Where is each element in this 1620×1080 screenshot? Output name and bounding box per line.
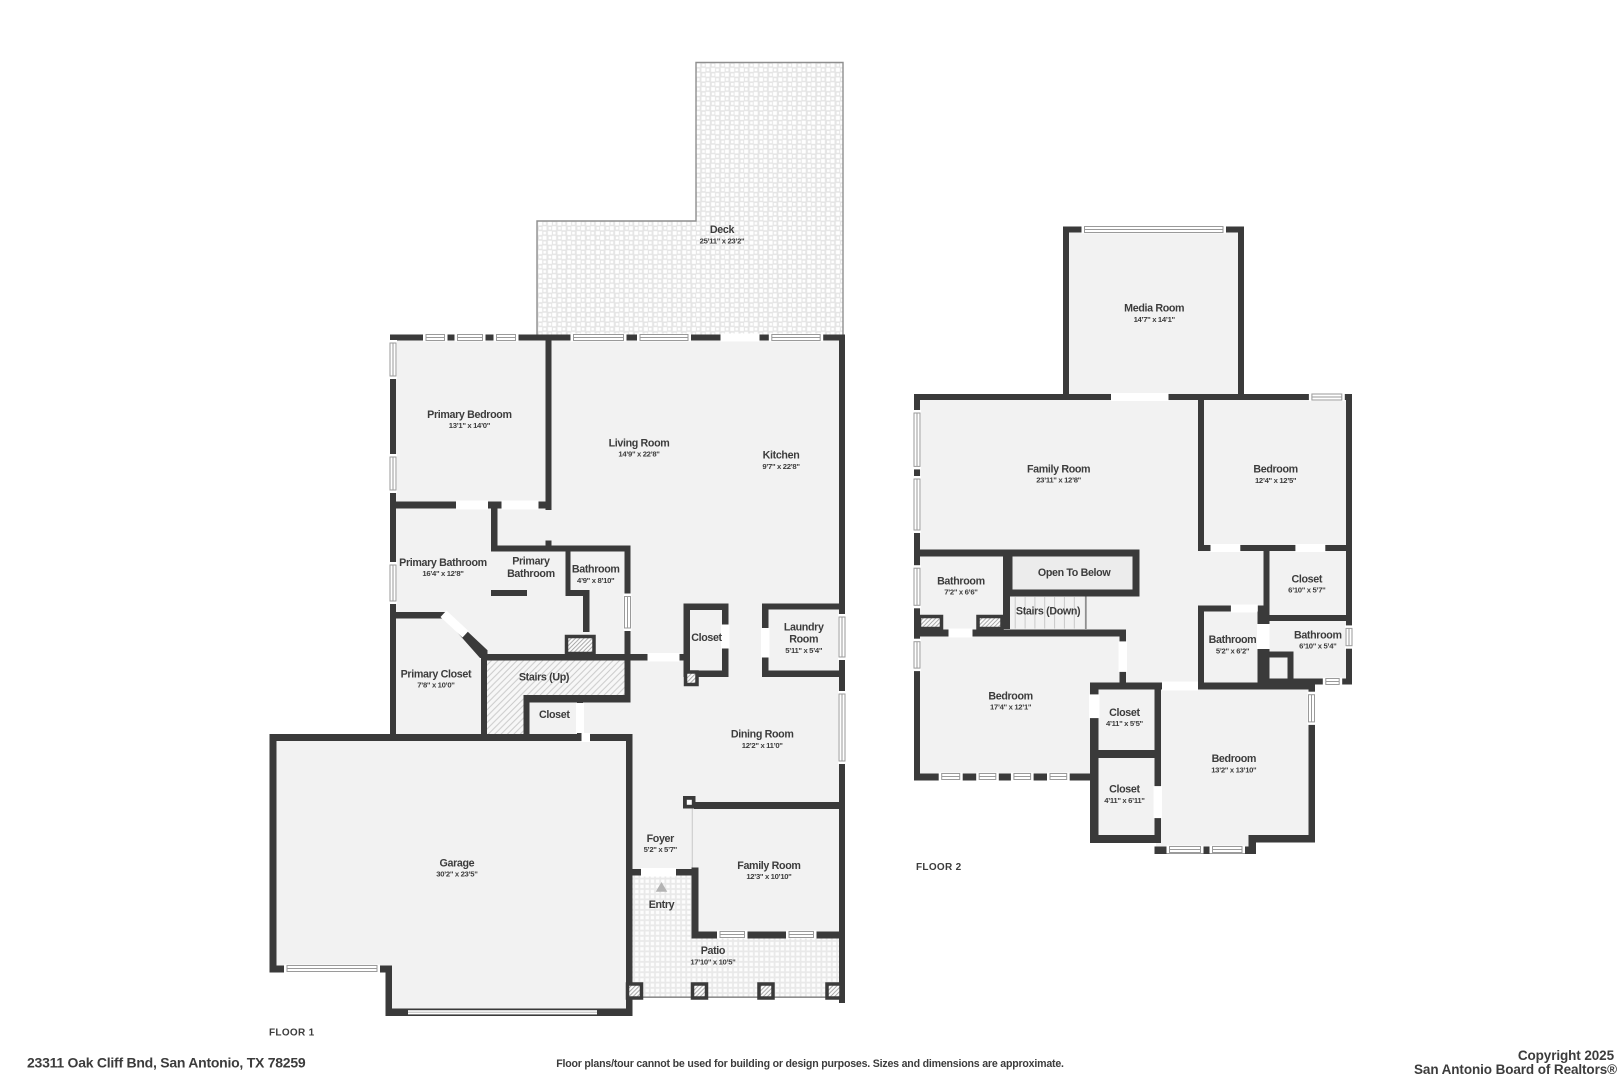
- svg-text:Room: Room: [789, 634, 818, 646]
- svg-text:Bedroom: Bedroom: [1212, 753, 1256, 765]
- svg-text:Closet: Closet: [1109, 784, 1140, 796]
- svg-text:Open To Below: Open To Below: [1038, 567, 1111, 579]
- svg-text:Bathroom: Bathroom: [507, 568, 555, 580]
- svg-text:12’4" x 12’5": 12’4" x 12’5": [1255, 476, 1297, 485]
- svg-text:7’8" x 10’0": 7’8" x 10’0": [417, 681, 455, 690]
- svg-text:16’4" x 12’8": 16’4" x 12’8": [422, 569, 464, 578]
- svg-text:Closet: Closet: [691, 632, 722, 644]
- svg-text:San Antonio Board of Realtors®: San Antonio Board of Realtors®: [1414, 1062, 1617, 1077]
- svg-text:Bedroom: Bedroom: [988, 690, 1032, 702]
- svg-text:4’11" x 5’5": 4’11" x 5’5": [1106, 719, 1144, 728]
- svg-text:13’1" x 14’0": 13’1" x 14’0": [449, 421, 491, 430]
- svg-text:Stairs (Up): Stairs (Up): [519, 672, 570, 684]
- svg-text:Entry: Entry: [649, 899, 675, 911]
- svg-text:FLOOR 2: FLOOR 2: [916, 862, 962, 873]
- svg-text:Laundry: Laundry: [784, 621, 824, 633]
- svg-text:5’2" x 5’7": 5’2" x 5’7": [644, 845, 678, 854]
- svg-text:Living Room: Living Room: [609, 437, 670, 449]
- svg-text:4’11" x 6’11": 4’11" x 6’11": [1104, 796, 1145, 805]
- svg-text:Bathroom: Bathroom: [572, 564, 620, 576]
- svg-text:Foyer: Foyer: [647, 833, 675, 845]
- svg-text:Primary Closet: Primary Closet: [401, 668, 472, 680]
- svg-text:30’2" x 23’5": 30’2" x 23’5": [436, 870, 478, 879]
- svg-text:Closet: Closet: [539, 709, 570, 721]
- svg-text:Media Room: Media Room: [1124, 303, 1184, 315]
- svg-text:Closet: Closet: [1109, 707, 1140, 719]
- svg-text:FLOOR 1: FLOOR 1: [269, 1028, 315, 1039]
- svg-text:Bathroom: Bathroom: [937, 575, 985, 587]
- svg-text:9’7" x 22’8": 9’7" x 22’8": [762, 462, 800, 471]
- svg-text:Primary: Primary: [512, 555, 550, 567]
- svg-text:12’3" x 10’10": 12’3" x 10’10": [746, 872, 792, 881]
- svg-text:Copyright 2025: Copyright 2025: [1518, 1048, 1615, 1063]
- svg-text:7’2" x 6’6": 7’2" x 6’6": [944, 588, 978, 597]
- svg-text:Floor plans/tour cannot be use: Floor plans/tour cannot be used for buil…: [556, 1058, 1064, 1070]
- svg-text:23311 Oak Cliff Bnd, San Anton: 23311 Oak Cliff Bnd, San Antonio, TX 782…: [27, 1055, 306, 1071]
- svg-text:5’11" x 5’4": 5’11" x 5’4": [785, 646, 823, 655]
- svg-text:Bathroom: Bathroom: [1294, 629, 1342, 641]
- svg-text:Stairs (Down): Stairs (Down): [1016, 606, 1081, 618]
- svg-text:Bedroom: Bedroom: [1253, 464, 1297, 476]
- svg-text:Deck: Deck: [710, 224, 735, 236]
- svg-text:Family Room: Family Room: [737, 860, 800, 872]
- svg-text:Garage: Garage: [440, 857, 475, 869]
- svg-text:Primary Bedroom: Primary Bedroom: [427, 409, 511, 421]
- svg-text:6’10" x 5’4": 6’10" x 5’4": [1299, 642, 1337, 651]
- svg-text:6’10" x 5’7": 6’10" x 5’7": [1288, 586, 1326, 595]
- svg-text:Closet: Closet: [1292, 573, 1323, 585]
- svg-text:Dining Room: Dining Room: [731, 729, 794, 741]
- svg-text:Patio: Patio: [701, 945, 726, 957]
- svg-text:23’11" x 12’8": 23’11" x 12’8": [1036, 476, 1081, 485]
- svg-text:17’4" x 12’1": 17’4" x 12’1": [990, 703, 1032, 712]
- svg-text:13’2" x 13’10": 13’2" x 13’10": [1211, 765, 1257, 774]
- svg-text:4’9" x 8’10": 4’9" x 8’10": [577, 576, 615, 585]
- svg-text:5’2" x 6’2": 5’2" x 6’2": [1216, 647, 1250, 656]
- svg-text:Bathroom: Bathroom: [1209, 634, 1257, 646]
- svg-text:14’7" x 14’1": 14’7" x 14’1": [1134, 315, 1176, 324]
- svg-text:Family Room: Family Room: [1027, 463, 1090, 475]
- svg-text:14’9" x 22’8": 14’9" x 22’8": [618, 450, 660, 459]
- svg-text:12’2" x 11’0": 12’2" x 11’0": [742, 741, 783, 750]
- svg-text:Primary Bathroom: Primary Bathroom: [399, 557, 487, 569]
- svg-text:Kitchen: Kitchen: [763, 450, 800, 462]
- svg-text:17’10" x 10’5": 17’10" x 10’5": [690, 957, 736, 966]
- svg-text:25’11" x 23’2": 25’11" x 23’2": [700, 236, 745, 245]
